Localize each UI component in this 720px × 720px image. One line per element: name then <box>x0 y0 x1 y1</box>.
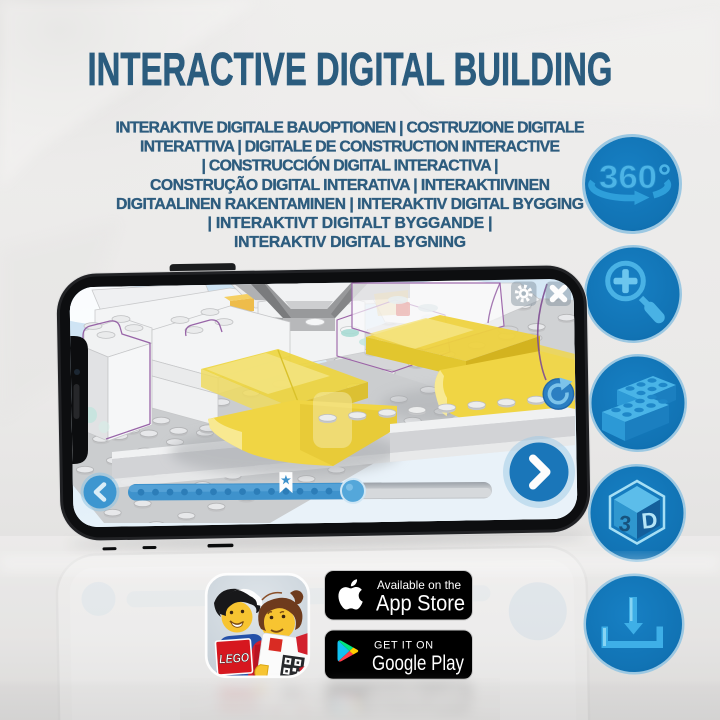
svg-text:App Store: App Store <box>376 591 465 616</box>
svg-text:| INTERAKTIVT DIGITALT BYGGAND: | INTERAKTIVT DIGITALT BYGGANDE | <box>208 215 493 232</box>
svg-text:CONSTRUÇÃO DIGITAL INTERATIVA: CONSTRUÇÃO DIGITAL INTERATIVA | INTERAKT… <box>150 174 550 194</box>
svg-text:INTERAKTIVE DIGITALE BAUOPTION: INTERAKTIVE DIGITALE BAUOPTIONEN | COSTR… <box>116 120 585 137</box>
svg-text:INTERATTIVA | DIGITALE DE CONS: INTERATTIVA | DIGITALE DE CONSTRUCTION I… <box>140 139 560 156</box>
svg-text:LEGO: LEGO <box>219 650 250 666</box>
svg-text:D: D <box>640 507 658 534</box>
svg-text:GET IT ON: GET IT ON <box>374 640 434 652</box>
svg-text:360: 360 <box>599 159 657 195</box>
svg-text:INTERACTIVE DIGITAL BUILDING: INTERACTIVE DIGITAL BUILDING <box>88 43 613 95</box>
svg-text:3: 3 <box>618 510 633 536</box>
svg-text:Google Play: Google Play <box>372 651 464 675</box>
svg-text:INTERAKTIV DIGITAL BYGNING: INTERAKTIV DIGITAL BYGNING <box>234 234 466 251</box>
svg-text:| CONSTRUCCIÓN DIGITAL INTERAC: | CONSTRUCCIÓN DIGITAL INTERACTIVA | <box>202 156 499 175</box>
svg-text:DIGITAALINEN RAKENTAMINEN | IN: DIGITAALINEN RAKENTAMINEN | INTERAKTIV D… <box>116 196 584 213</box>
